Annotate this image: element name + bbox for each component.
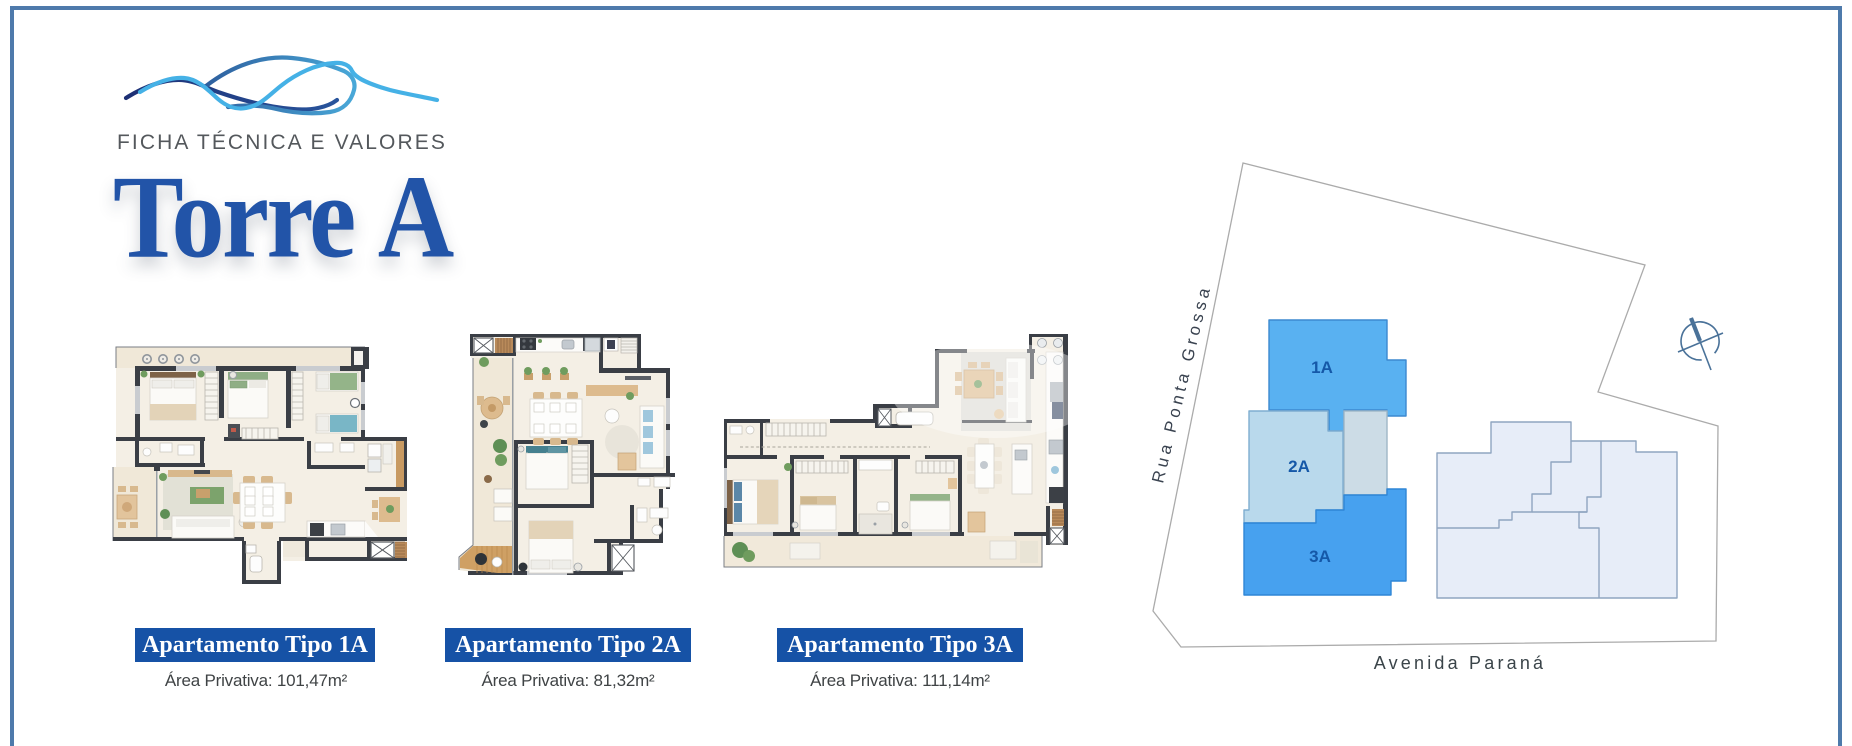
- svg-text:2A: 2A: [1288, 457, 1310, 476]
- svg-text:1A: 1A: [1311, 358, 1333, 377]
- svg-text:3A: 3A: [1309, 547, 1331, 566]
